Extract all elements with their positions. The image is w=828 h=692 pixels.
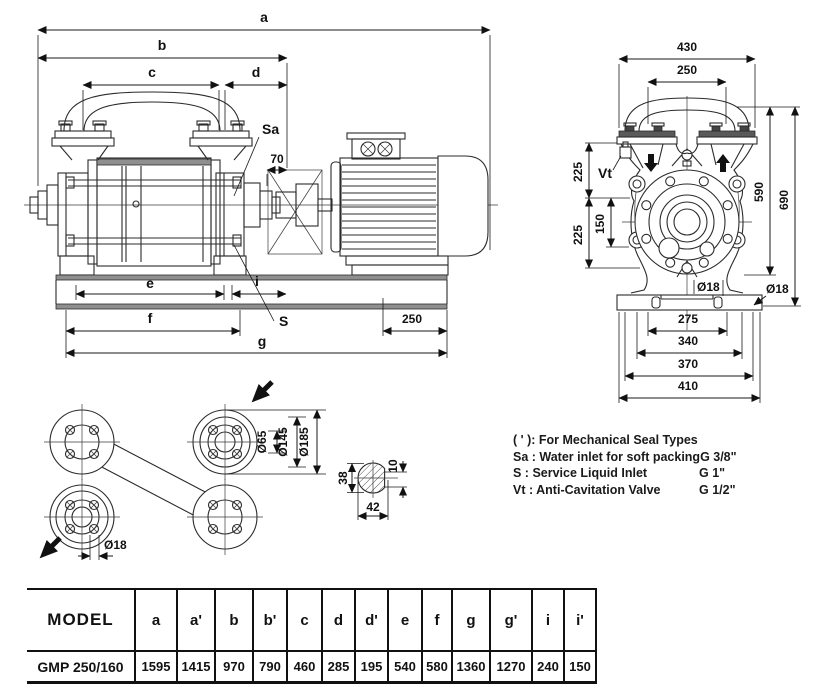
table-row: GMP 250/160 1595 1415 970 790 460 285 19… — [27, 651, 596, 683]
vt-label: Vt — [598, 165, 612, 181]
cell-g-prime: 1270 — [490, 651, 532, 683]
dim-42-label: 42 — [366, 500, 380, 514]
header-g-prime: g' — [490, 589, 532, 651]
header-i: i — [532, 589, 564, 651]
legend-label: Sa : Water inlet for soft packing — [513, 449, 700, 466]
dim-d-label: d — [252, 64, 261, 80]
side-view: a b c d Sa 70 e i f — [24, 9, 498, 358]
legend-row: ( ' ): For Mechanical Seal Types — [513, 432, 765, 449]
header-a: a — [135, 589, 177, 651]
legend: ( ' ): For Mechanical Seal Types Sa : Wa… — [513, 432, 765, 498]
legend-value: G 3/8" — [700, 449, 765, 466]
table-header-row: MODEL a a' b b' c d d' e f g g' i i' — [27, 589, 596, 651]
dim-d18-bolt-label: Ø18 — [104, 538, 127, 552]
cell-b: 970 — [215, 651, 253, 683]
dim-225-top-label: 225 — [571, 162, 585, 182]
terminal-box — [352, 139, 400, 159]
header-b: b — [215, 589, 253, 651]
header-d-prime: d' — [355, 589, 388, 651]
dim-d145-label: Ø145 — [276, 427, 290, 457]
flange-bottom-right — [187, 479, 263, 555]
motor — [331, 133, 488, 275]
header-model: MODEL — [27, 589, 135, 651]
header-b-prime: b' — [253, 589, 287, 651]
dim-a-label: a — [260, 9, 268, 25]
dim-g-label: g — [258, 333, 267, 349]
shaft-section-view: 38 42 10 — [336, 459, 407, 520]
cell-g: 1360 — [452, 651, 490, 683]
dim-340-label: 340 — [678, 334, 698, 348]
flange-top-right — [187, 404, 263, 480]
header-f: f — [422, 589, 452, 651]
legend-row: S : Service Liquid Inlet G 1" — [513, 465, 765, 482]
cell-a-prime: 1415 — [177, 651, 215, 683]
top-pipework — [52, 92, 252, 160]
cell-a: 1595 — [135, 651, 177, 683]
flange-top-left — [44, 404, 120, 480]
header-i-prime: i' — [564, 589, 596, 651]
bearing-cover-circles — [635, 170, 739, 277]
cell-c: 460 — [287, 651, 322, 683]
header-e: e — [388, 589, 422, 651]
cell-e: 540 — [388, 651, 422, 683]
s-label: S — [279, 313, 288, 329]
lifting-eyebolt — [682, 150, 692, 160]
cell-f: 580 — [422, 651, 452, 683]
dim-10-label: 10 — [386, 459, 400, 473]
sa-label: Sa — [262, 121, 279, 137]
terminal-box-lid — [347, 133, 405, 139]
legend-row: Vt : Anti-Cavitation Valve G 1/2" — [513, 482, 765, 499]
legend-value: G 1/2" — [699, 482, 765, 499]
cell-model: GMP 250/160 — [27, 651, 135, 683]
dim-d185-label: Ø185 — [297, 427, 311, 457]
header-g: g — [452, 589, 490, 651]
technical-drawing-page: a b c d Sa 70 e i f — [0, 0, 828, 692]
header-c: c — [287, 589, 322, 651]
cell-b-prime: 790 — [253, 651, 287, 683]
header-a-prime: a' — [177, 589, 215, 651]
motor-foot — [346, 256, 448, 265]
dim-c-label: c — [148, 64, 156, 80]
dim-70-label: 70 — [270, 152, 284, 166]
legend-label: S : Service Liquid Inlet — [513, 465, 647, 482]
dim-d18-slot-label: Ø18 — [697, 280, 720, 294]
flange-top-view: Ø65 Ø145 Ø185 Ø18 — [44, 382, 326, 560]
cell-i: 240 — [532, 651, 564, 683]
coupling-guard — [268, 170, 332, 254]
dim-d18-edge-label: Ø18 — [766, 282, 789, 296]
front-view: Vt 430 250 225 225 150 — [571, 40, 801, 403]
dim-150-label: 150 — [593, 214, 607, 234]
dim-250-label: 250 — [402, 312, 422, 326]
dim-690-label: 690 — [777, 190, 791, 210]
flow-up-arrow-icon — [716, 154, 730, 172]
baseplate — [56, 275, 447, 309]
view-direction-arrow-icon — [258, 382, 272, 396]
header-d: d — [322, 589, 355, 651]
dim-430-label: 430 — [677, 40, 697, 54]
dim-275-label: 275 — [678, 312, 698, 326]
dim-225-bottom-label: 225 — [571, 225, 585, 245]
dim-590-label: 590 — [752, 182, 766, 202]
dim-d65-label: Ø65 — [255, 430, 269, 453]
cell-d-prime: 195 — [355, 651, 388, 683]
cell-d: 285 — [322, 651, 355, 683]
legend-row: Sa : Water inlet for soft packing G 3/8" — [513, 449, 765, 466]
pump-casing — [88, 158, 220, 266]
dimension-table: MODEL a a' b b' c d d' e f g g' i i' GMP… — [27, 588, 597, 684]
tie-rods — [66, 177, 241, 246]
legend-label: Vt : Anti-Cavitation Valve — [513, 482, 660, 499]
legend-label: ( ' ): For Mechanical Seal Types — [513, 432, 698, 449]
right-pedestal-gland — [214, 173, 280, 275]
legend-value — [699, 432, 765, 449]
dim-250-front-label: 250 — [677, 63, 697, 77]
dim-38-label: 38 — [336, 471, 350, 485]
flow-down-arrow-icon — [644, 154, 658, 172]
dim-f-label: f — [148, 310, 153, 326]
front-feet — [617, 295, 762, 310]
dim-370-label: 370 — [678, 357, 698, 371]
view-direction-arrow-icon — [46, 538, 60, 552]
dim-e-label: e — [146, 275, 154, 291]
left-shaft-stub — [30, 173, 94, 275]
dim-410-label: 410 — [678, 379, 698, 393]
dim-b-label: b — [158, 37, 167, 53]
legend-value: G 1" — [699, 465, 765, 482]
cell-i-prime: 150 — [564, 651, 596, 683]
